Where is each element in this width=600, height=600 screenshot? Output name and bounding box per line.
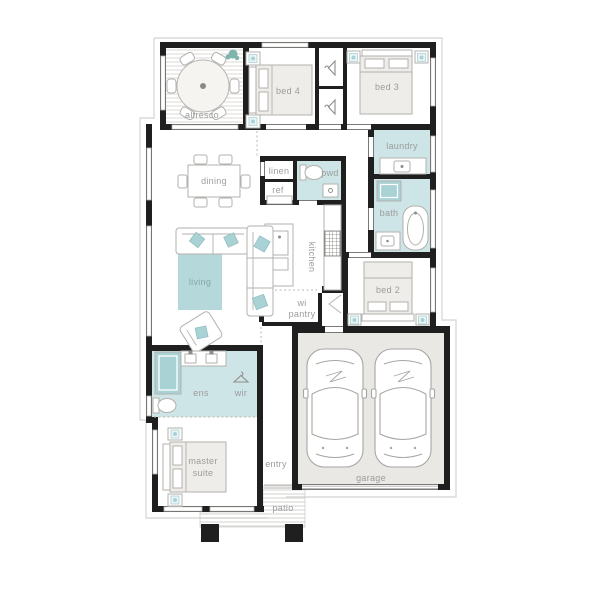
bench-cooktop — [324, 205, 341, 290]
vanity-icon — [181, 351, 226, 366]
patio-label: patio — [272, 503, 293, 513]
window — [172, 125, 238, 129]
wir-label: wir — [234, 388, 247, 398]
bed4-label: bed 4 — [276, 86, 300, 96]
window — [431, 268, 435, 312]
dining-label: dining — [201, 176, 227, 186]
garage-label: garage — [356, 473, 386, 483]
room-bed3: bed 3 — [347, 50, 428, 114]
basin-icon — [323, 184, 338, 197]
master-suite-label-1: master — [188, 456, 217, 466]
kitchen-label: kitchen — [307, 242, 317, 273]
cooktop-icon — [325, 231, 341, 256]
window — [164, 507, 202, 511]
room-bed2: bed 2 — [348, 262, 429, 325]
patio-pillar-right — [285, 524, 303, 542]
window — [210, 507, 254, 511]
bed3-label: bed 3 — [375, 82, 399, 92]
bathtub-icon — [403, 206, 428, 250]
window — [147, 396, 151, 416]
entry-label: entry — [265, 459, 287, 469]
car-icon — [372, 349, 435, 467]
linen-label: linen — [269, 166, 290, 176]
living-label: living — [189, 277, 211, 287]
window — [161, 56, 165, 110]
room-dining: dining — [178, 155, 250, 207]
window — [147, 148, 151, 200]
laundry-label: laundry — [386, 141, 418, 151]
room-kitchen: kitchen — [265, 205, 341, 290]
patio-pillar-left — [201, 524, 219, 542]
window — [147, 226, 151, 336]
bed2-label: bed 2 — [376, 285, 400, 295]
window — [431, 190, 435, 248]
hanger-icon — [325, 100, 335, 114]
hanger-icon — [325, 61, 335, 75]
wi-pantry-label-2: pantry — [289, 309, 316, 319]
chaise-icon — [247, 226, 273, 316]
room-bed4: bed 4 — [246, 52, 312, 128]
floor-plan: alfresco bed 4 — [0, 0, 600, 600]
fridge-icon — [267, 196, 292, 204]
room-living: living — [176, 226, 273, 354]
sliding-door — [431, 136, 435, 172]
ens-label: ens — [193, 388, 209, 398]
door-leaf-icon — [329, 295, 341, 313]
fridge-space: ref — [267, 185, 292, 204]
car-icon — [304, 349, 367, 467]
room-entry: entry — [265, 459, 287, 469]
master-suite-label-2: suite — [193, 468, 214, 478]
bed-icon — [163, 442, 226, 492]
room-patio: patio — [272, 503, 293, 513]
pwd-label: pwd — [321, 168, 338, 178]
sofa-icon — [176, 228, 250, 254]
window — [153, 430, 157, 474]
window — [431, 58, 435, 106]
toilet-icon — [153, 398, 176, 413]
alfresco-label: alfresco — [185, 110, 219, 120]
linen-cupboard: linen — [269, 166, 290, 176]
shower-icon — [155, 352, 181, 394]
window — [262, 43, 308, 47]
bath-label: bath — [380, 208, 399, 218]
wi-pantry-label-1: wi — [296, 298, 306, 308]
room-wi-pantry: wi pantry — [289, 295, 341, 319]
room-master-suite: master suite — [163, 428, 226, 506]
ref-label: ref — [272, 185, 284, 195]
floor-plan-canvas: alfresco bed 4 — [0, 0, 600, 600]
vanity-icon — [376, 232, 400, 250]
toilet-icon — [300, 165, 323, 180]
